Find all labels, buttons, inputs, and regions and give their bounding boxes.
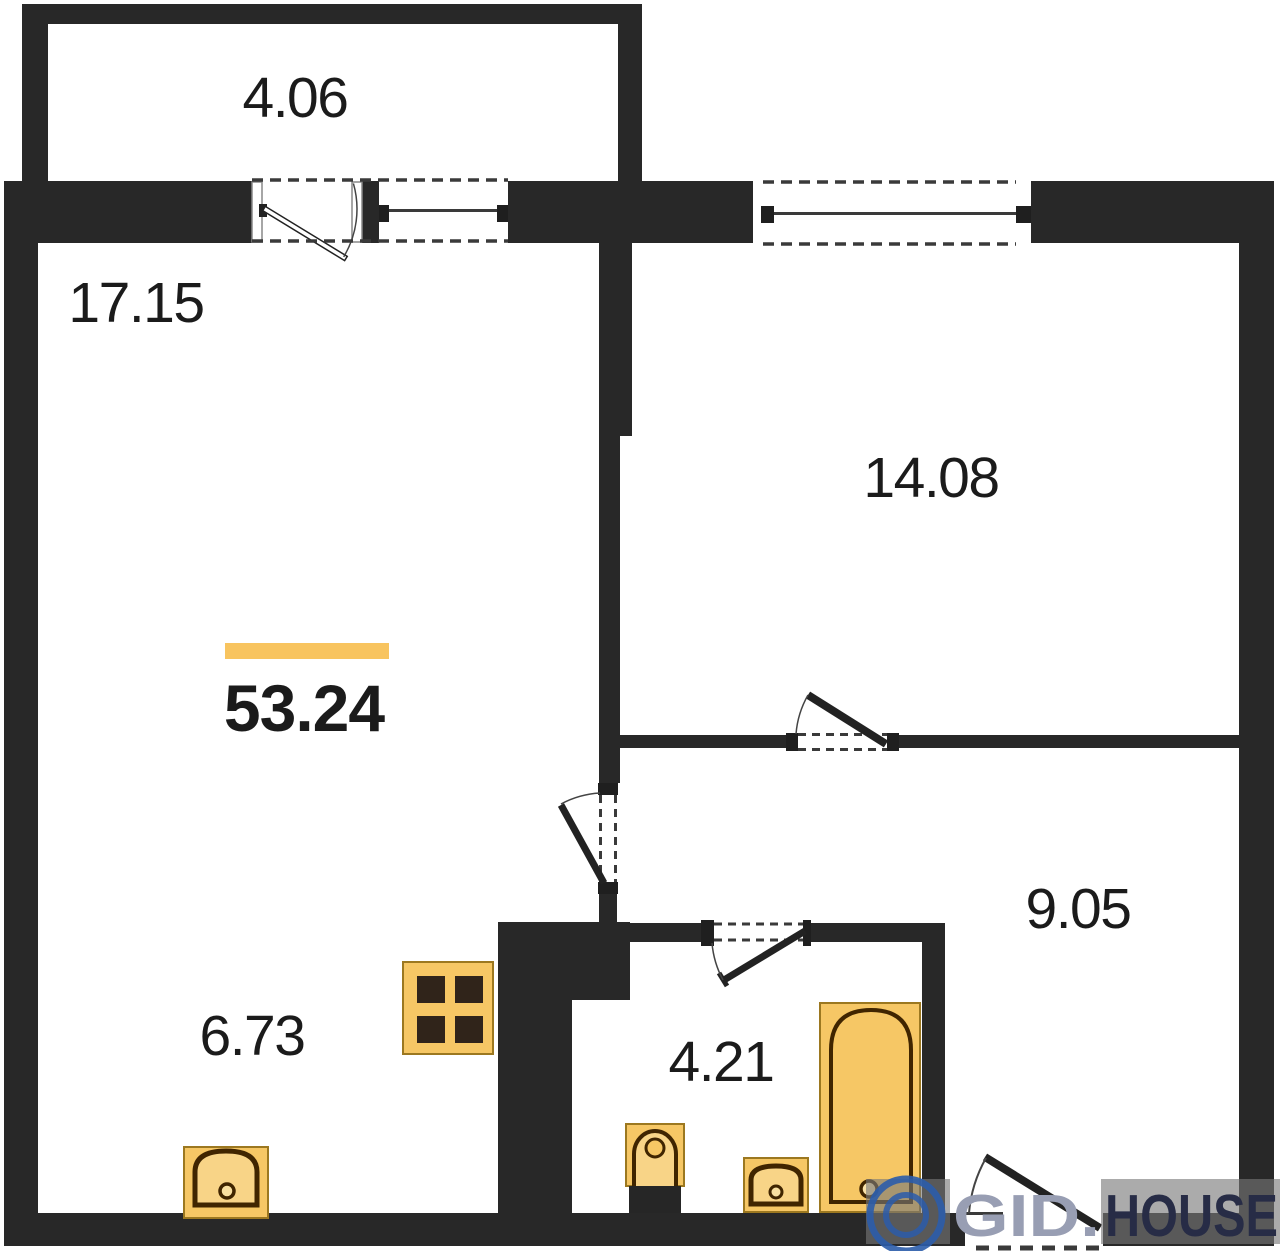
svg-text:GID.: GID. [953,1183,1100,1249]
svg-text:6.73: 6.73 [200,1004,305,1068]
svg-text:14.08: 14.08 [863,446,998,510]
svg-text:17.15: 17.15 [68,271,203,335]
svg-text:HOUSE: HOUSE [1105,1183,1278,1249]
svg-text:53.24: 53.24 [224,671,385,745]
svg-text:4.21: 4.21 [669,1030,774,1094]
svg-text:9.05: 9.05 [1026,877,1131,941]
svg-text:4.06: 4.06 [243,66,348,130]
